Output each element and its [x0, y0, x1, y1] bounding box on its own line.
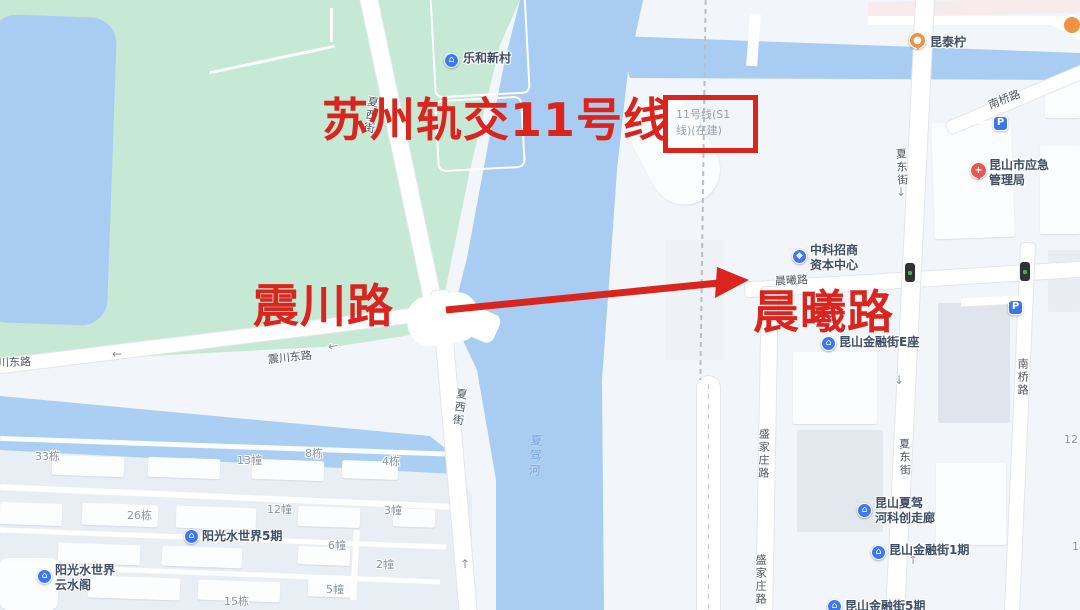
road-arrow: ←: [327, 339, 339, 353]
building-number: 4栋: [382, 453, 400, 469]
building-poi-icon[interactable]: ⌂: [827, 599, 842, 610]
building-number: 26栋: [127, 507, 152, 523]
road-label-zhenchuan-east-partial: 震川东路: [0, 356, 31, 370]
road-label-xiadong-upper: 夏东街: [894, 148, 908, 188]
lake: [0, 14, 117, 326]
emergency-bureau-pin-icon[interactable]: +: [970, 162, 987, 179]
building-number: 33栋: [35, 448, 60, 464]
building: [252, 459, 325, 482]
building: [298, 506, 361, 528]
road-label-shengjiazhuang-lower: 盛家庄路: [754, 554, 766, 606]
city-block: [665, 240, 723, 360]
road-label-nanqiao-lower: 南桥路: [1016, 358, 1028, 397]
road-label-xiadong-lower: 夏东街: [897, 438, 910, 477]
building-number: 1: [1072, 540, 1079, 553]
poi-label-yunshuige[interactable]: 阳光水世界 云水阁: [55, 563, 115, 593]
road-arrow: ↓: [894, 374, 904, 386]
river-label: 夏驾河: [526, 434, 545, 480]
building: [793, 352, 877, 424]
map-canvas[interactable]: ← ← ↑ ↓ ↓ ↑ 震川东路 震川东路 夏西街 夏西街 夏东街 夏东街 南桥…: [0, 0, 1080, 610]
residential-poi-icon[interactable]: ⌂: [184, 529, 199, 544]
annotation-chenxi-road: 晨曦路: [753, 289, 894, 335]
poi-label-emergency-bureau[interactable]: 昆山市应急 管理局: [989, 158, 1049, 188]
park-plot: [429, 0, 531, 98]
poi-label-zhongke-zhaoshang[interactable]: 中科招商 资本中心: [810, 243, 858, 273]
poi-pin-partial: [1062, 15, 1080, 35]
city-block: [797, 430, 883, 532]
road-arrow: ↓: [896, 186, 906, 198]
building-number: 12幢: [267, 501, 292, 517]
building-number: 8栋: [305, 445, 323, 461]
building: [52, 455, 125, 478]
annotation-zhenchuan-road: 震川路: [253, 283, 394, 329]
poi-label-kuntaining[interactable]: 昆泰柠: [930, 35, 966, 50]
park-path: [330, 8, 333, 42]
road-label-zhenchuan-east: 震川东路: [267, 350, 312, 367]
road-label-shengjiazhuang-upper: 盛家庄路: [757, 428, 770, 480]
building: [58, 543, 141, 566]
building-number: 6幢: [328, 537, 346, 553]
restaurant-pin-icon[interactable]: ●: [909, 32, 926, 49]
poi-label-financial-street-5[interactable]: 昆山金融街5期: [845, 599, 925, 610]
parking-icon[interactable]: P: [993, 116, 1008, 131]
parking-icon[interactable]: P: [1008, 300, 1023, 315]
building: [148, 457, 221, 480]
road-arrow: ↑: [460, 558, 470, 570]
road-band: [868, 16, 1080, 25]
building-poi-icon[interactable]: ⌂: [871, 545, 886, 560]
building: [176, 506, 257, 531]
building-number: 2幢: [376, 556, 394, 572]
construction-box-text: 11号线(S1 线)(在建): [676, 107, 730, 139]
construction-band-dashes: [708, 384, 710, 610]
city-block: [1048, 250, 1080, 312]
residential-poi-icon[interactable]: ⌂: [37, 569, 52, 584]
traffic-light-icon: [905, 263, 915, 282]
residential-poi-icon[interactable]: ⌂: [444, 53, 459, 68]
building-number: 12: [1064, 433, 1078, 446]
city-block: [938, 303, 1010, 423]
poi-label-sunshine-water-world-5[interactable]: 阳光水世界5期: [202, 529, 282, 544]
building-number: 15栋: [224, 593, 249, 609]
poi-label-xiajia-river-corridor[interactable]: 昆山夏驾 河科创走廊: [875, 496, 935, 526]
traffic-light-icon: [1020, 262, 1030, 281]
building: [0, 502, 62, 526]
building-number: 13幢: [237, 452, 262, 468]
highway-strip: [868, 0, 1080, 17]
poi-label-financial-street-1[interactable]: 昆山金融街1期: [889, 543, 969, 558]
building: [162, 546, 243, 569]
parking-connector: [972, 121, 994, 124]
poi-label-lehe-xincun[interactable]: 乐和新村: [463, 51, 511, 66]
building-number: 5幢: [326, 581, 344, 597]
annotation-metro-line: 苏州轨交11号线: [322, 97, 670, 143]
building: [936, 463, 1006, 545]
road-arrow: ←: [112, 348, 122, 360]
building-number: 3幢: [384, 502, 402, 518]
building-poi-icon[interactable]: ⌂: [857, 503, 872, 518]
company-poi-icon[interactable]: ◆: [792, 249, 807, 264]
